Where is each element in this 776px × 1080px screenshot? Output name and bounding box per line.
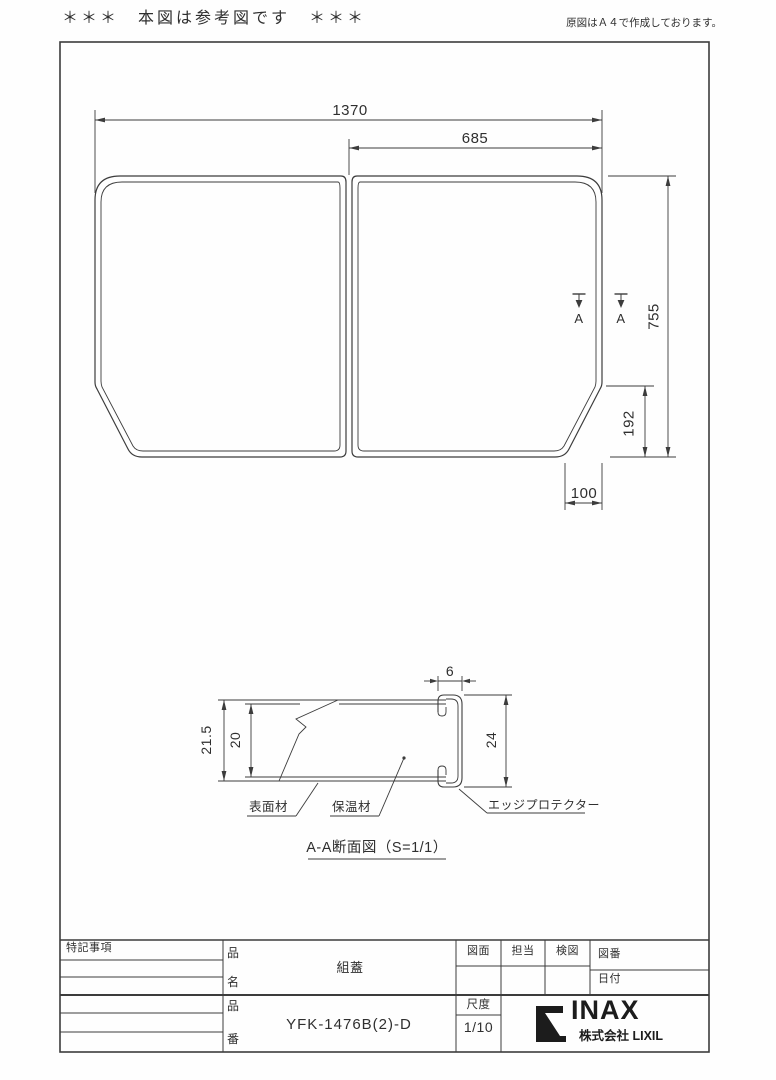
inax-logo-icon — [536, 1006, 566, 1042]
dim-overall-width: 1370 — [320, 103, 380, 118]
section-cut-markers — [573, 294, 628, 308]
section-title: A-A断面図（S=1/1） — [297, 841, 457, 856]
dim-outer-thickness: 21.5 — [199, 720, 213, 760]
check-cell-header: 検図 — [545, 946, 590, 957]
lixil-company-text: 株式会社 LIXIL — [579, 1030, 663, 1043]
dim-edge-width: 6 — [438, 664, 462, 678]
product-name-label-bottom: 名 — [227, 976, 240, 988]
product-name-value: 組蓋 — [300, 961, 400, 974]
label-edge-protector: エッジプロテクター — [488, 799, 600, 811]
label-surface-material: 表面材 — [249, 801, 288, 814]
dim-chamfer-width: 100 — [564, 486, 604, 501]
product-no-label-bottom: 番 — [227, 1033, 240, 1045]
drawing-sheet: ＊＊＊ 本図は参考図です ＊＊＊ 原図はＡ４で作成しております。 1370 68… — [0, 0, 776, 1080]
scale-header: 尺度 — [456, 1000, 501, 1012]
product-no-value: YFK-1476B(2)-D — [269, 1017, 429, 1032]
right-panel-inner-line — [358, 182, 596, 451]
edge-protector-profile — [438, 695, 462, 787]
right-panel-outline — [352, 176, 602, 457]
plan-view-dimensions — [95, 110, 676, 510]
left-panel-outline — [95, 176, 346, 457]
drawing-linework — [0, 0, 776, 1080]
sheet-frame — [60, 42, 709, 1052]
break-line — [279, 700, 338, 781]
scale-value: 1/10 — [456, 1020, 501, 1034]
original-size-note: 原図はＡ４で作成しております。 — [560, 18, 722, 29]
left-panel-inner-line — [101, 182, 340, 451]
plan-view-panels — [95, 176, 602, 457]
inax-brand-text: INAX — [571, 997, 640, 1024]
product-name-label-top: 品 — [227, 947, 240, 959]
dim-core-thickness: 20 — [228, 720, 242, 760]
reference-note: ＊＊＊ 本図は参考図です ＊＊＊ — [62, 11, 366, 27]
staff-cell-header: 担当 — [501, 946, 545, 957]
label-insulation-material: 保温材 — [332, 801, 371, 814]
drawing-cell-header: 図面 — [456, 946, 501, 957]
dim-edge-height: 24 — [484, 720, 498, 760]
dim-chamfer-depth: 192 — [622, 404, 637, 444]
product-no-label-top: 品 — [227, 1000, 240, 1012]
date-header: 日付 — [598, 974, 621, 985]
notes-header: 特記事項 — [66, 943, 112, 954]
drawing-no-header: 図番 — [598, 949, 621, 960]
section-marker-a-right: A — [611, 312, 631, 325]
dim-overall-depth: 755 — [647, 297, 662, 337]
section-view-geometry — [279, 695, 462, 787]
dim-half-width: 685 — [445, 131, 505, 146]
section-marker-a-left: A — [569, 312, 589, 325]
section-view-dimensions — [218, 676, 585, 859]
